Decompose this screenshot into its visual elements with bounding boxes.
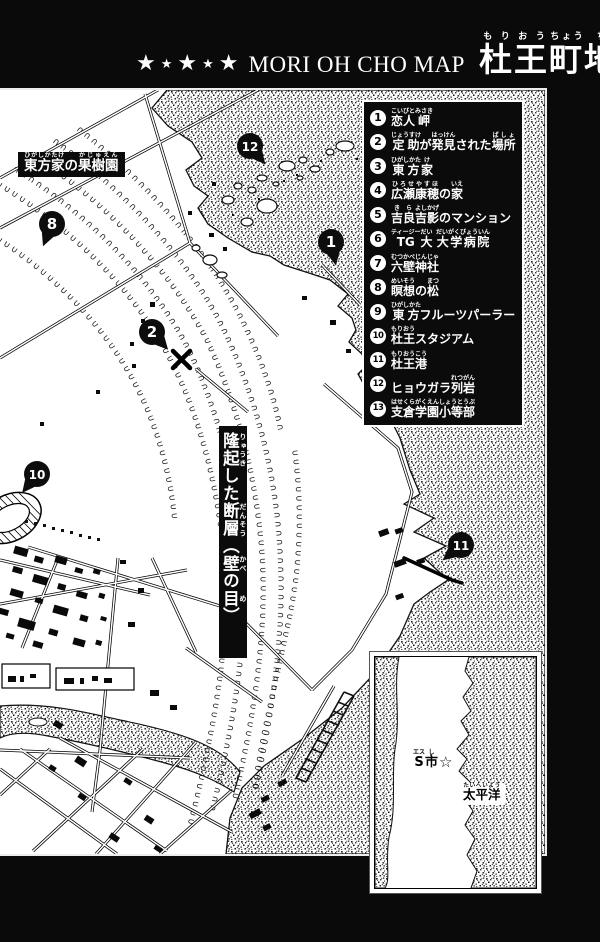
legend-item: 13支倉はせくら学園がくえん小等部しょうとうぶ [370, 399, 518, 418]
legend-number-badge: 4 [370, 182, 386, 198]
legend-item: 5吉良きら吉影よしかげのマンション [370, 205, 518, 224]
star-icon: ★ [136, 53, 156, 75]
star-icon: ★ [219, 53, 239, 75]
legend-number-badge: 6 [370, 231, 386, 247]
legend-number-badge: 8 [370, 279, 386, 295]
legend-item: 4広瀬ひろせ康穂やすほの家いえ [370, 181, 518, 200]
legend-label: 恋人こいびと岬みさき [391, 108, 433, 127]
legend-label: 杜王もりおうスタジアム [391, 326, 474, 345]
legend-item: 11杜王もりおう港こう [370, 351, 518, 370]
legend-label: 瞑想めいそうの松まつ [391, 278, 439, 297]
warehouse-lots [2, 664, 134, 690]
svg-text:11: 11 [453, 539, 470, 553]
legend-item: 1恋人こいびと岬みさき [370, 108, 518, 127]
legend-number-badge: 11 [370, 352, 386, 368]
inset-pacific-sea [457, 657, 536, 888]
title-english: MORI OH CHO MAP [249, 52, 465, 78]
legend-label: 吉良きら吉影よしかげのマンション [391, 205, 511, 224]
legend-number-badge: 12 [370, 376, 386, 392]
legend-label: ヒョウガラ列岩れつがん [391, 375, 475, 394]
title-japanese: 杜もり王おう町ちょう地ち図ず [479, 32, 600, 78]
legend-item: 7六壁むつかべ神社じんじゃ [370, 254, 518, 273]
inset-coastline [375, 657, 536, 888]
star-icon: ★ [202, 58, 214, 71]
legend-label: 支倉はせくら学園がくえん小等部しょうとうぶ [391, 399, 475, 418]
legend-label: 東方ひがしかた家け [391, 157, 433, 176]
legend-item: 9東方ひがしかたフルーツパーラー [370, 302, 518, 321]
legend-panel: 1恋人こいびと岬みさき2定助じょうすけが発見はっけんされた場所ばしょ3東方ひがし… [362, 100, 524, 427]
legend-label: 六壁むつかべ神社じんじゃ [391, 254, 439, 273]
legend-label: 広瀬ひろせ康穂やすほの家いえ [391, 181, 463, 200]
s-city-label: Sエス市し☆ [413, 749, 452, 770]
river-islet [29, 718, 47, 726]
legend-number-badge: 9 [370, 304, 386, 320]
legend-label: 杜王もりおう港こう [391, 351, 427, 370]
legend-item: 6TGティージー大だい 大学病院だいがくびょういん [370, 229, 518, 248]
legend-number-badge: 5 [370, 207, 386, 223]
star-icon: ★ [161, 58, 173, 71]
svg-text:10: 10 [29, 468, 46, 482]
legend-item: 10杜王もりおうスタジアム [370, 326, 518, 345]
legend-item: 2定助じょうすけが発見はっけんされた場所ばしょ [370, 132, 518, 151]
svg-text:2: 2 [147, 323, 157, 341]
legend-item: 3東方ひがしかた家け [370, 157, 518, 176]
legend-item: 12ヒョウガラ列岩れつがん [370, 375, 518, 394]
legend-number-badge: 7 [370, 255, 386, 271]
legend-label: TGティージー大だい 大学病院だいがくびょういん [391, 229, 490, 248]
star-rating: ★★★★★ [136, 53, 239, 75]
legend-number-badge: 3 [370, 158, 386, 174]
svg-text:8: 8 [47, 215, 57, 233]
page-header: ★★★★★ MORI OH CHO MAP 杜もり王おう町ちょう地ち図ず [0, 0, 600, 88]
orchard-label: 東方家ひがしかたけの果樹園かじゅえん [18, 152, 125, 177]
pacific-ocean-label: 太平洋たいへいよう [459, 783, 505, 805]
legend-number-badge: 10 [370, 328, 386, 344]
legend-number-badge: 1 [370, 110, 386, 126]
city-star-icon: ☆ [439, 755, 452, 770]
s-city-text: Sエス市し [413, 749, 438, 770]
legend-label: 定助じょうすけが発見はっけんされた場所ばしょ [391, 132, 516, 151]
legend-number-badge: 2 [370, 134, 386, 150]
legend-label: 東方ひがしかたフルーツパーラー [391, 302, 515, 321]
star-icon: ★ [177, 53, 197, 75]
legend-item: 8瞑想めいそうの松まつ [370, 278, 518, 297]
manga-map-page: { "header": { "stars": ["★","★","★","★",… [0, 0, 600, 942]
legend-number-badge: 13 [370, 401, 386, 417]
region-inset-map: Sエス市し☆ 太平洋たいへいよう [374, 656, 537, 889]
fault-label: 隆起りゅうきした断層だんそう（壁かべの目め） [219, 426, 247, 658]
svg-text:1: 1 [326, 233, 336, 251]
svg-text:12: 12 [242, 140, 259, 154]
